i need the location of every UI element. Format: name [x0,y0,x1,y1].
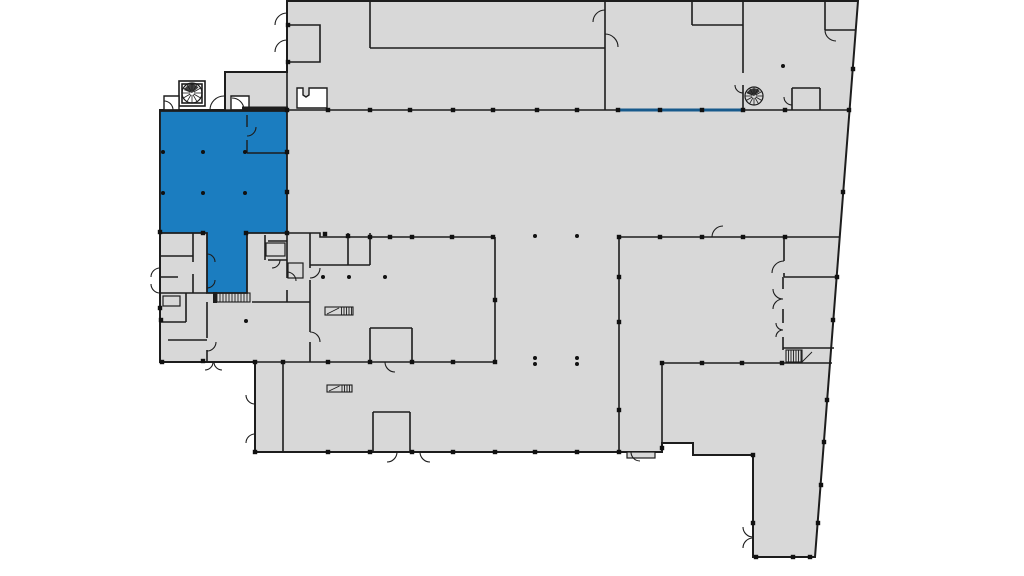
column-tick [285,231,289,235]
column-dot [575,356,579,360]
spiral-stair-icon [745,87,763,105]
column-tick [740,361,744,365]
column-tick [751,521,755,525]
column-tick [658,235,662,239]
column-dot [243,150,247,154]
column-tick [660,361,664,365]
column-tick [700,108,704,112]
door-arc [246,434,255,443]
column-tick [816,521,820,525]
column-tick [368,450,372,454]
column-tick [160,360,164,364]
door-arc [246,395,255,404]
spiral-stair-icon [182,83,202,103]
column-tick [201,231,205,235]
column-tick [533,450,537,454]
column-tick [158,306,162,310]
column-dot [533,362,537,366]
column-tick [286,60,290,64]
column-tick [493,450,497,454]
column-tick [616,108,620,112]
column-tick [368,235,372,239]
door-arc [743,538,753,548]
column-dot [383,275,387,279]
column-tick [617,320,621,324]
column-tick [831,318,835,322]
fixture [266,243,285,256]
column-dot [244,319,248,323]
column-dot [533,234,537,238]
column-tick [285,150,289,154]
column-dot [347,275,351,279]
column-dot [533,356,537,360]
column-tick [617,408,621,412]
door-arc [205,362,213,370]
column-tick [158,230,162,234]
column-tick [450,235,454,239]
column-tick [851,67,855,71]
column-tick [658,108,662,112]
column-dot [161,191,165,195]
floor-plan-svg [0,0,1024,576]
column-tick [617,275,621,279]
column-dot [575,234,579,238]
column-dot [781,64,785,68]
column-tick [285,190,289,194]
door-arc [420,452,430,462]
column-tick [491,108,495,112]
column-tick [253,360,257,364]
column-tick [286,23,290,27]
column-tick [617,450,621,454]
column-tick [451,450,455,454]
column-dot [243,191,247,195]
column-tick [368,108,372,112]
column-tick [281,360,285,364]
door-arc [275,40,287,52]
door-arc [210,96,224,110]
column-tick [660,446,664,450]
column-dot [201,191,205,195]
door-arc [275,13,287,25]
column-tick [388,235,392,239]
column-tick [819,483,823,487]
column-tick [368,360,372,364]
column-tick [754,555,758,559]
column-tick [323,232,327,236]
floor-plan-page [0,0,1024,576]
column-tick [326,450,330,454]
column-dot [321,275,325,279]
column-dot [161,150,165,154]
column-tick [835,275,839,279]
column-tick [346,234,350,238]
column-dot [201,150,205,154]
column-tick [491,235,495,239]
column-tick [783,108,787,112]
fixture [288,263,303,278]
building-outline [160,1,858,557]
column-tick [285,108,289,112]
column-tick [791,555,795,559]
column-tick [410,360,414,364]
column-tick [780,361,784,365]
column-tick [847,108,851,112]
column-dot [575,362,579,366]
door-arc [743,527,753,537]
column-tick [493,360,497,364]
column-tick [493,298,497,302]
column-tick [201,359,205,363]
door-arc [387,452,397,462]
column-tick [575,108,579,112]
door-arc [151,268,160,277]
column-tick [751,453,755,457]
column-tick [575,450,579,454]
column-tick [741,235,745,239]
column-tick [410,235,414,239]
column-tick [822,440,826,444]
column-tick [253,450,257,454]
column-tick [741,108,745,112]
column-tick [408,108,412,112]
column-tick [783,235,787,239]
column-tick [451,360,455,364]
column-tick [617,235,621,239]
column-tick [700,235,704,239]
column-tick [808,555,812,559]
door-arc [214,362,222,370]
column-tick [326,360,330,364]
column-tick [841,190,845,194]
column-tick [410,450,414,454]
column-tick [700,361,704,365]
fixture [163,296,180,306]
column-tick [451,108,455,112]
column-tick [535,108,539,112]
column-tick [159,318,163,322]
column-tick [244,231,248,235]
column-tick [825,398,829,402]
column-tick [326,108,330,112]
entry-vestibule [164,96,179,110]
door-arc [151,284,160,293]
notched-entry-room [297,88,327,108]
